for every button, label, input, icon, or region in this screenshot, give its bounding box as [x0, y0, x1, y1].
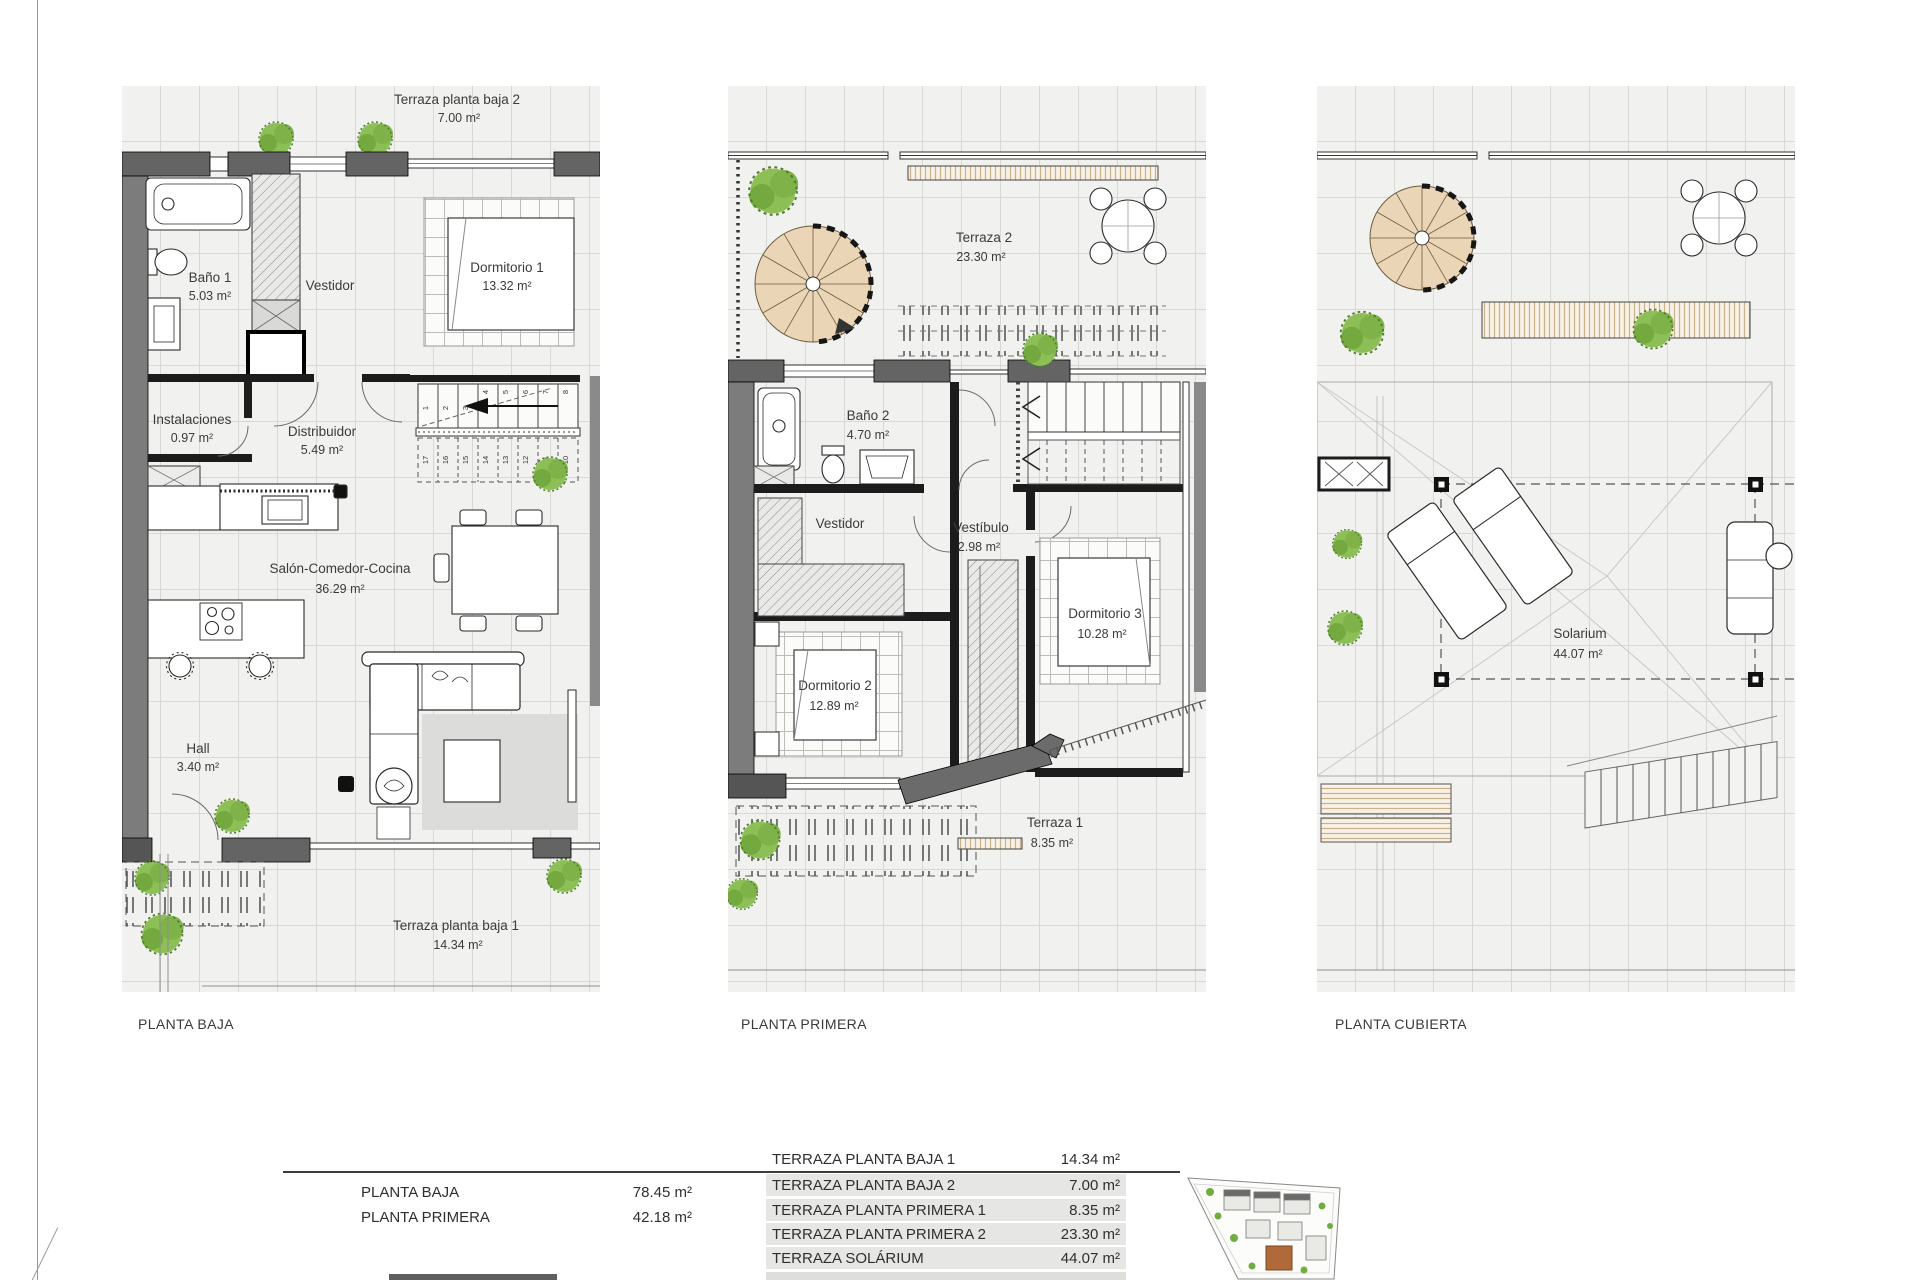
sheet-border-corner [27, 1227, 59, 1280]
stair-number: 6 [521, 390, 530, 394]
cut-row [389, 1274, 557, 1280]
floor-plan-planta-primera: Terraza 2 23.30 m² [728, 86, 1206, 992]
stair-number: 14 [481, 456, 490, 464]
exterior-wall-left [728, 382, 754, 778]
terrace-row-label: TERRAZA PLANTA BAJA 1 [772, 1151, 955, 1168]
room-name: Distribuidor [288, 424, 357, 439]
stair-number: 17 [421, 456, 430, 464]
summary-row-value: 78.45 m² [540, 1184, 692, 1201]
room-area: 23.30 m² [956, 250, 1005, 264]
room-name: Instalaciones [153, 412, 232, 427]
room-area: 44.07 m² [1553, 647, 1602, 661]
stair-number: 2 [441, 406, 450, 410]
stair-number: 13 [501, 456, 510, 464]
room-name: Salón-Comedor-Cocina [269, 561, 411, 576]
wardrobe [758, 564, 904, 616]
balustrade-top [728, 152, 1206, 159]
spiral-stair [1370, 186, 1474, 290]
stair-number: 3 [461, 406, 470, 410]
stair-number: 12 [521, 456, 530, 464]
terrace-row-label: TERRAZA PLANTA PRIMERA 1 [772, 1202, 986, 1219]
floor-plan-planta-cubierta: Solarium 44.07 m² [1317, 86, 1795, 992]
room-area: 3.40 m² [177, 760, 219, 774]
dining-table [434, 510, 558, 631]
room-name: Hall [186, 741, 209, 756]
room-name: Dormitorio 1 [470, 260, 544, 275]
cut-row [766, 1272, 1126, 1280]
plan-caption-planta-cubierta: PLANTA CUBIERTA [1335, 1016, 1467, 1032]
highlighted-unit [1266, 1246, 1292, 1270]
stair-number: 16 [441, 456, 450, 464]
room-name: Terraza planta baja 2 [394, 92, 520, 107]
terrace-row-value: 14.34 m² [980, 1151, 1120, 1168]
floor-outlet [338, 776, 354, 792]
stair-number: 4 [481, 390, 490, 394]
room-area: 12.89 m² [809, 699, 858, 713]
room-area: 4.70 m² [847, 428, 889, 442]
night-table [755, 622, 779, 646]
stair-number: 5 [501, 390, 510, 394]
party-wall-right [1194, 382, 1206, 692]
room-area: 0.97 m² [171, 431, 213, 445]
summary-row-label: PLANTA PRIMERA [361, 1209, 490, 1226]
hall-wardrobe [968, 560, 1018, 768]
plan-caption-planta-baja: PLANTA BAJA [138, 1016, 234, 1032]
room-area: 2.98 m² [958, 540, 1000, 554]
room-area: 7.00 m² [438, 111, 480, 125]
room-label-vestidor: Vestidor [816, 516, 865, 531]
terrace-row-label: TERRAZA PLANTA BAJA 2 [772, 1177, 955, 1194]
terrace-row-value: 23.30 m² [980, 1226, 1120, 1243]
bench-slats [958, 838, 1022, 849]
stair-number: 15 [461, 456, 470, 464]
plan-sheet: Terraza planta baja 2 7.00 m² [0, 0, 1920, 1280]
stair-number: 7 [541, 390, 550, 394]
room-name: Vestíbulo [953, 520, 1009, 535]
summary-row-label: PLANTA BAJA [361, 1184, 459, 1201]
louver-band [1321, 784, 1451, 814]
pergola-slats [1482, 302, 1750, 338]
spiral-stair [755, 226, 871, 342]
terrace-row-label: TERRAZA SOLÁRIUM [772, 1250, 924, 1267]
summary-divider [283, 1171, 1180, 1173]
coffee-table [444, 740, 500, 802]
terrace-row-value: 7.00 m² [980, 1177, 1120, 1194]
room-area: 14.34 m² [433, 938, 482, 952]
terrace-row-label: TERRAZA PLANTA PRIMERA 2 [772, 1226, 986, 1243]
room-name: Baño 2 [847, 408, 890, 423]
vent-unit [1319, 458, 1389, 490]
tv-unit [568, 690, 576, 802]
room-name: Solarium [1553, 626, 1606, 641]
room-area: 5.03 m² [189, 289, 231, 303]
room-name: Terraza 1 [1027, 815, 1083, 830]
room-area: 36.29 m² [315, 582, 364, 596]
summary-row-value: 42.18 m² [540, 1209, 692, 1226]
sheet-border-left [37, 0, 38, 1280]
floor-plan-planta-baja: Terraza planta baja 2 7.00 m² [122, 86, 600, 992]
room-label-vestidor: Vestidor [306, 278, 355, 293]
room-name: Dormitorio 2 [798, 678, 872, 693]
stair-number: 8 [561, 390, 570, 394]
terrace-row-value: 8.35 m² [980, 1202, 1120, 1219]
duct [248, 332, 304, 380]
balustrade-top [1317, 152, 1795, 159]
room-name: Terraza planta baja 1 [393, 918, 519, 933]
night-table [755, 732, 779, 756]
plan-caption-planta-primera: PLANTA PRIMERA [741, 1016, 867, 1032]
room-area: 5.49 m² [301, 443, 343, 457]
room-area: 13.32 m² [482, 279, 531, 293]
louver-band [1321, 818, 1451, 842]
room-name: Dormitorio 3 [1068, 606, 1142, 621]
terrace-row-value: 44.07 m² [980, 1250, 1120, 1267]
stair-number: 1 [421, 406, 430, 410]
exterior-wall-left [122, 176, 148, 840]
room-area: 8.35 m² [1031, 836, 1073, 850]
bench-slats [908, 166, 1158, 180]
room-name: Baño 1 [189, 270, 232, 285]
party-wall-right [590, 376, 600, 706]
site-plan-thumbnail [1182, 1176, 1344, 1280]
glass-wall [1183, 382, 1189, 772]
room-area: 10.28 m² [1077, 627, 1126, 641]
room-name: Terraza 2 [956, 230, 1012, 245]
